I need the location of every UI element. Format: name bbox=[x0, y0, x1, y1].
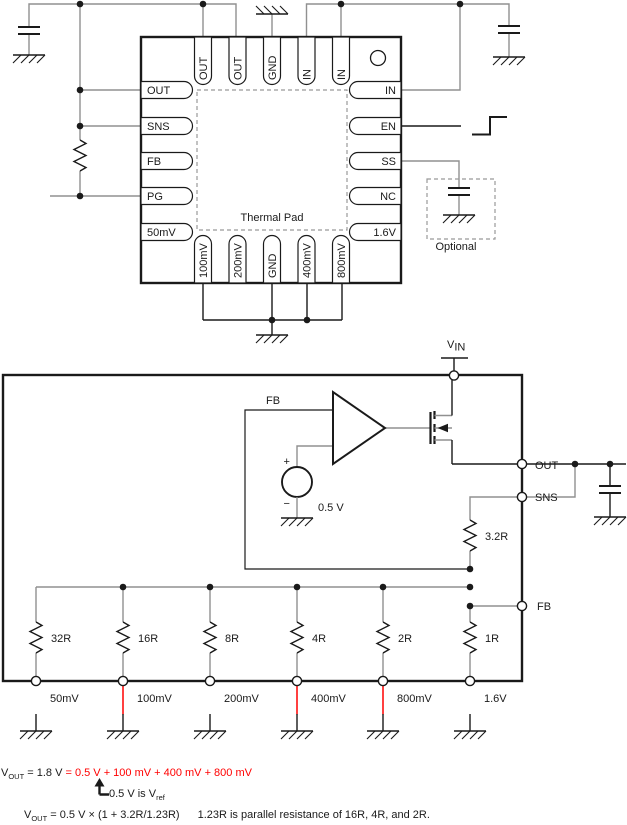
resistor-label: 16R bbox=[138, 633, 158, 645]
junction-dot bbox=[607, 461, 614, 468]
datasheet-figure-page: Optional Thermal Pad bbox=[0, 0, 627, 825]
resistor-label: 8R bbox=[225, 633, 239, 645]
pin-label: SS bbox=[381, 156, 396, 168]
resistor-3r2 bbox=[464, 520, 476, 551]
ground-symbol bbox=[194, 731, 226, 739]
resistor-8r bbox=[204, 622, 216, 653]
pin-node-800mv bbox=[378, 676, 387, 685]
output-capacitor bbox=[599, 486, 621, 493]
pin-label: IN bbox=[302, 69, 314, 80]
pin-label: GND bbox=[267, 56, 279, 81]
ground-symbol bbox=[20, 731, 52, 739]
vin-label: VIN bbox=[447, 339, 465, 354]
pin-node-400mv bbox=[292, 676, 301, 685]
parallel-resistance-note: 1.23R is parallel resistance of 16R, 4R,… bbox=[198, 809, 430, 821]
sns-label: SNS bbox=[535, 492, 558, 504]
voltage-source-icon bbox=[282, 467, 312, 497]
pin-label: OUT bbox=[147, 85, 171, 97]
noninverting-wire bbox=[297, 446, 333, 467]
sns-node bbox=[517, 492, 526, 501]
resistor-2r bbox=[377, 622, 389, 653]
gnd-strap-wiring bbox=[203, 283, 342, 335]
ladder-bus bbox=[36, 587, 518, 606]
pin-label: IN bbox=[385, 85, 396, 97]
pin-label: 100mV bbox=[198, 242, 210, 278]
vout-ratio-formula: VOUT = 0.5 V × (1 + 3.2R/1.23R)1.23R is … bbox=[24, 809, 430, 821]
soft-start-capacitor bbox=[448, 188, 470, 195]
resistor-16r bbox=[117, 622, 129, 653]
package-pinout-diagram: Optional Thermal Pad bbox=[13, 1, 525, 343]
vref-pointer-arrow-icon bbox=[94, 778, 110, 797]
vref-annotation: 0.5 V is Vref bbox=[109, 788, 165, 800]
pin-node-200mv bbox=[205, 676, 214, 685]
pin-node-100mv bbox=[118, 676, 127, 685]
pin-label: SNS bbox=[147, 121, 170, 133]
pin-label: PG bbox=[147, 191, 163, 203]
ground-stubs bbox=[36, 714, 470, 731]
ground-symbol bbox=[281, 731, 313, 739]
bottom-pin-label: 200mV bbox=[224, 693, 260, 705]
pin-label: IN bbox=[336, 69, 348, 80]
formula-black-part: VOUT = 1.8 V bbox=[1, 767, 65, 779]
ground-symbol bbox=[454, 731, 486, 739]
device-terminals bbox=[31, 371, 526, 686]
pin-node-50mv bbox=[31, 676, 40, 685]
bottom-pin-label: 100mV bbox=[137, 693, 173, 705]
resistor-label: 32R bbox=[51, 633, 71, 645]
vin-node bbox=[449, 371, 458, 380]
resistor-label: 4R bbox=[312, 633, 326, 645]
resistor-label: 1R bbox=[485, 633, 499, 645]
ground-symbol bbox=[13, 55, 45, 63]
pin-label: OUT bbox=[198, 57, 210, 81]
resistor-4r bbox=[291, 622, 303, 653]
pinout-and-schematic-figure: Optional Thermal Pad bbox=[0, 0, 627, 760]
fb-node bbox=[517, 601, 526, 610]
pin-label: 400mV bbox=[302, 242, 314, 278]
vref-value-label: 0.5 V bbox=[318, 502, 344, 514]
device-boundary bbox=[3, 375, 522, 681]
vref-source: + − 0.5 V bbox=[281, 456, 344, 526]
pass-fet bbox=[431, 380, 453, 464]
resistor-ladder: 32R 16R 8R 4R 2R 1R bbox=[30, 566, 518, 677]
minus-sign: − bbox=[284, 498, 290, 510]
optional-label: Optional bbox=[436, 241, 477, 253]
plus-sign: + bbox=[284, 456, 290, 468]
internal-schematic: VIN FB + − 0.5 V bbox=[3, 339, 626, 739]
enable-step-icon bbox=[472, 117, 507, 135]
vout-sum-formula: VOUT = 1.8 V = 0.5 V + 100 mV + 400 mV +… bbox=[1, 767, 252, 779]
pin-label: 50mV bbox=[147, 227, 176, 239]
ground-symbol bbox=[107, 731, 139, 739]
out-label: OUT bbox=[535, 460, 559, 472]
out-node bbox=[517, 459, 526, 468]
fb-label: FB bbox=[537, 601, 551, 613]
vin-terminal: VIN bbox=[441, 339, 468, 371]
ladder-leads bbox=[36, 587, 470, 677]
ground-symbol-flipped bbox=[256, 6, 288, 14]
ground-symbol bbox=[256, 335, 288, 343]
input-capacitor-left bbox=[18, 27, 40, 34]
input-capacitor-right bbox=[498, 26, 520, 33]
resistor-1r bbox=[464, 622, 476, 653]
opamp-triangle-icon bbox=[333, 392, 385, 464]
bottom-pin-label: 50mV bbox=[50, 693, 79, 705]
ground-symbol bbox=[281, 518, 313, 526]
thermal-pad-label: Thermal Pad bbox=[241, 212, 304, 224]
pin-label: FB bbox=[147, 156, 161, 168]
pin-label: EN bbox=[381, 121, 396, 133]
bottom-pin-label: 400mV bbox=[311, 693, 347, 705]
pin-label: NC bbox=[380, 191, 396, 203]
pin-label: 1.6V bbox=[373, 227, 396, 239]
pin-node-1v6 bbox=[465, 676, 474, 685]
feedback-top-resistor: 3.2R bbox=[464, 497, 518, 569]
pin-label: 800mV bbox=[336, 242, 348, 278]
ground-symbol bbox=[367, 731, 399, 739]
ground-symbol bbox=[493, 57, 525, 65]
fb-internal-label: FB bbox=[266, 395, 280, 407]
bottom-pin-label: 800mV bbox=[397, 693, 433, 705]
r-top-label: 3.2R bbox=[485, 531, 508, 543]
ground-symbol bbox=[443, 215, 475, 223]
ground-symbol bbox=[594, 517, 626, 525]
pin-label: OUT bbox=[233, 57, 245, 81]
junction-dot bbox=[572, 461, 579, 468]
pin-label: 200mV bbox=[233, 242, 245, 278]
bottom-pin-label: 1.6V bbox=[484, 693, 507, 705]
pullup-resistor bbox=[74, 140, 86, 171]
resistor-32r bbox=[30, 622, 42, 653]
pin-label: GND bbox=[267, 254, 279, 279]
error-amplifier: FB bbox=[245, 392, 470, 569]
resistor-label: 2R bbox=[398, 633, 412, 645]
fet-body-arrow-icon bbox=[438, 424, 449, 432]
